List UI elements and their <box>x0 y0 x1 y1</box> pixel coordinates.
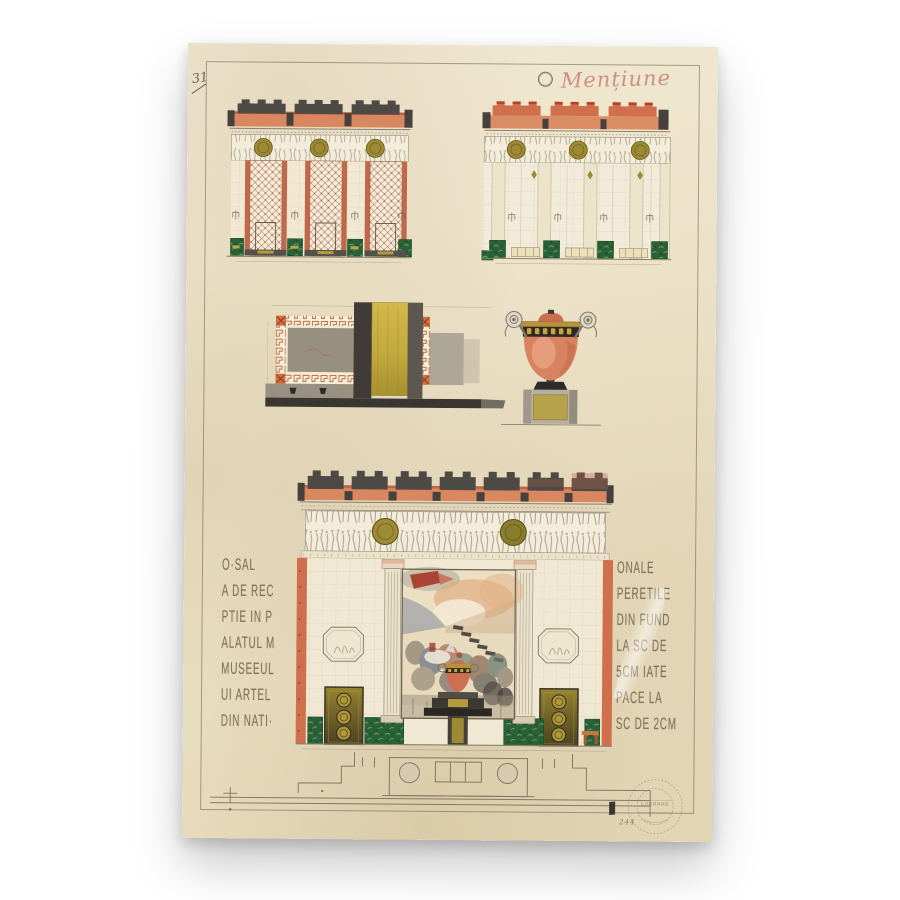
detail-section-greek-key <box>265 302 511 419</box>
bronze-door-right <box>540 689 578 746</box>
octagonal-cartouche-right <box>538 629 578 663</box>
award-text: Mențiune <box>561 66 672 93</box>
circle-monogram-icon <box>538 71 553 86</box>
dark-base-bar <box>265 398 481 409</box>
elevation-pale-wall <box>481 100 672 273</box>
annotation-right: ONALE PERETILE DIN FUND LA SC DE 5CM IAT… <box>616 554 697 737</box>
pencil-note: 244 <box>619 818 635 826</box>
elevation-red-windows <box>226 98 412 271</box>
krater-vase-study <box>495 297 606 428</box>
crenellated-parapet <box>298 470 614 503</box>
pedestal <box>523 390 577 424</box>
photo-backdrop: 31 Mențiune <box>0 0 900 900</box>
pilaster-wall <box>483 162 670 258</box>
drawing-sheet: 31 Mențiune <box>182 43 718 842</box>
stud-base <box>265 384 353 399</box>
bronze-door-left <box>325 687 363 744</box>
crenellated-parapet <box>227 99 412 127</box>
crenellated-parapet-orange <box>482 101 668 129</box>
main-elevation-mural <box>295 467 613 763</box>
sculpted-frieze <box>484 136 670 163</box>
archive-stamp: LUCRARE 244 <box>607 772 693 841</box>
stamp-text: LUCRARE <box>641 802 669 808</box>
gray-wash-panel <box>288 328 364 373</box>
lattice-wall <box>230 160 408 256</box>
octagonal-cartouche-left <box>323 627 363 661</box>
sculpted-frieze <box>231 134 408 161</box>
vase-body <box>521 310 580 381</box>
procession-frieze <box>305 511 605 553</box>
annotation-left: O·SAL A DE REC PTIE IN P ALATUL M MUSEEU… <box>221 551 302 734</box>
page-number: 31 <box>191 70 210 87</box>
award-inscription: Mențiune <box>538 64 671 95</box>
pylon-bars <box>353 302 423 399</box>
